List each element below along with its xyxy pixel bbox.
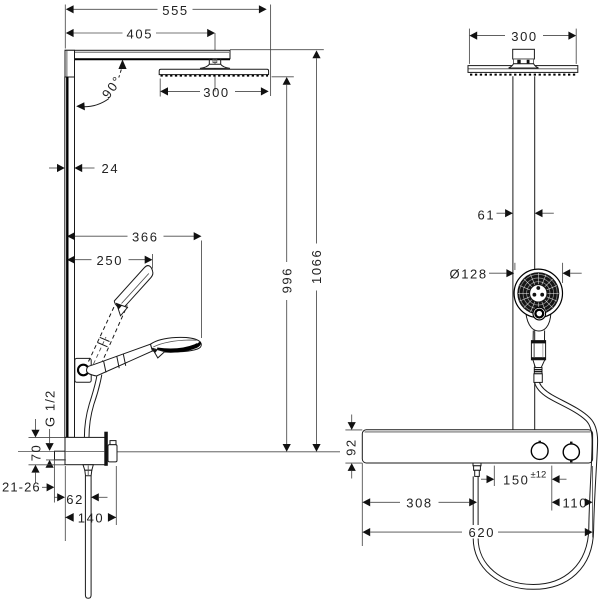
svg-text:996: 996 bbox=[279, 267, 294, 294]
svg-text:555: 555 bbox=[162, 3, 189, 18]
svg-text:62: 62 bbox=[66, 492, 84, 507]
svg-text:150: 150 bbox=[503, 472, 530, 487]
svg-text:61: 61 bbox=[478, 207, 496, 222]
svg-text:21-26: 21-26 bbox=[2, 480, 41, 495]
svg-text:24: 24 bbox=[102, 161, 120, 176]
svg-text:1066: 1066 bbox=[309, 249, 324, 284]
svg-text:620: 620 bbox=[469, 525, 496, 540]
svg-text:92: 92 bbox=[343, 438, 358, 456]
svg-text:300: 300 bbox=[511, 29, 538, 44]
svg-text:140: 140 bbox=[78, 510, 105, 525]
svg-text:70: 70 bbox=[29, 444, 44, 462]
svg-text:366: 366 bbox=[132, 230, 159, 245]
svg-text:110: 110 bbox=[563, 495, 589, 510]
svg-text:250: 250 bbox=[97, 253, 124, 268]
svg-text:Ø128: Ø128 bbox=[450, 266, 488, 281]
svg-text:308: 308 bbox=[406, 495, 433, 510]
svg-text:±12: ±12 bbox=[531, 469, 547, 480]
svg-text:G 1/2: G 1/2 bbox=[43, 390, 58, 427]
svg-text:405: 405 bbox=[127, 27, 154, 42]
svg-text:300: 300 bbox=[203, 85, 230, 100]
